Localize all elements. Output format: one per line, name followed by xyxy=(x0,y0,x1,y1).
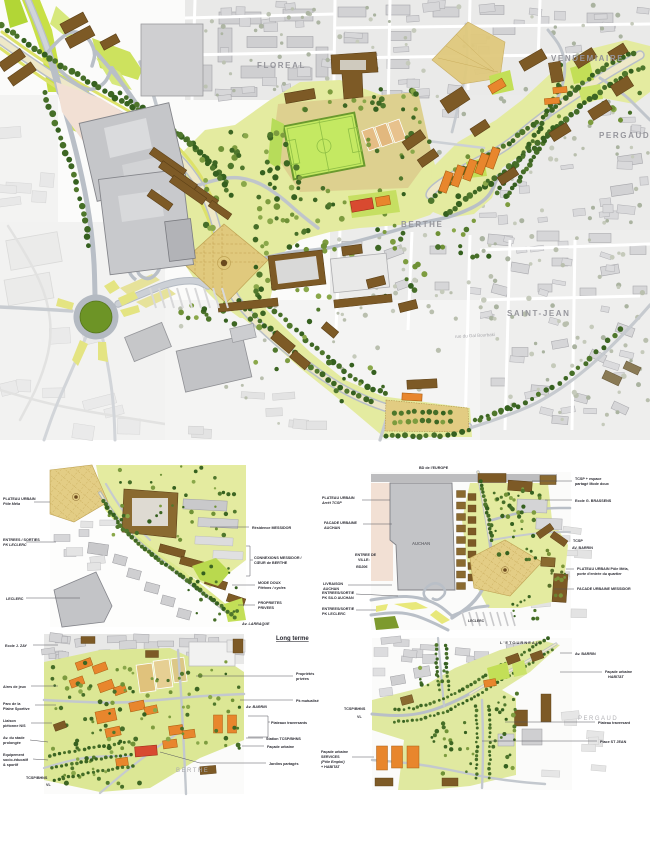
svg-text:PK LECLERC: PK LECLERC xyxy=(3,543,27,547)
svg-text:Pk mutualisé: Pk mutualisé xyxy=(296,699,319,703)
svg-text:TCSP + espace: TCSP + espace xyxy=(575,477,601,481)
svg-text:(Pôle Emploi): (Pôle Emploi) xyxy=(321,760,345,764)
svg-text:SERVICES: SERVICES xyxy=(321,755,340,759)
svg-text:AUCHAN: AUCHAN xyxy=(324,526,340,530)
svg-text:ENTREES/SORTIE: ENTREES/SORTIE xyxy=(322,607,355,611)
svg-text:Ecole G. BRASSENS: Ecole G. BRASSENS xyxy=(575,499,612,503)
svg-text:+ HABITAT: + HABITAT xyxy=(321,765,341,769)
svg-text:piétonne N/S: piétonne N/S xyxy=(3,724,26,728)
svg-text:TCSP/BHNS: TCSP/BHNS xyxy=(344,707,366,711)
svg-text:CONNEXIONS MESSIDOR /: CONNEXIONS MESSIDOR / xyxy=(254,556,302,560)
svg-text:Façade urbaine: Façade urbaine xyxy=(321,750,348,754)
svg-text:TCSP: TCSP xyxy=(573,539,583,543)
svg-text:VILLE:: VILLE: xyxy=(358,558,370,562)
svg-text:privées: privées xyxy=(296,677,309,681)
svg-text:Av. LARRAQUE: Av. LARRAQUE xyxy=(241,622,270,626)
svg-text:Station TCSP/BHNS: Station TCSP/BHNS xyxy=(266,737,301,741)
svg-text:CŒUR de BERTHE: CŒUR de BERTHE xyxy=(254,561,288,565)
svg-text:Jardins partagés: Jardins partagés xyxy=(269,762,299,766)
svg-text:VL: VL xyxy=(357,715,362,719)
svg-text:PLATEAU URBAIN: PLATEAU URBAIN xyxy=(322,496,355,500)
svg-text:Liaison: Liaison xyxy=(3,719,17,723)
svg-text:socio-éducatif: socio-éducatif xyxy=(3,758,29,762)
svg-text:& sportif: & sportif xyxy=(3,763,19,767)
svg-text:Equipement: Equipement xyxy=(3,753,25,757)
svg-text:FLOREAL: FLOREAL xyxy=(257,61,306,70)
svg-text:Av. BARRIN: Av. BARRIN xyxy=(245,705,267,709)
svg-text:PLATEAU URBAIN Pôle Méla,: PLATEAU URBAIN Pôle Méla, xyxy=(577,567,629,571)
svg-text:PRIVEES: PRIVEES xyxy=(258,606,275,610)
svg-text:prolongée: prolongée xyxy=(3,741,21,745)
svg-text:Aires de jeux: Aires de jeux xyxy=(3,685,27,689)
svg-text:Propriétés: Propriétés xyxy=(296,672,314,676)
svg-text:Arrêt TCSP: Arrêt TCSP xyxy=(321,501,342,505)
svg-text:PK SILO AUCHAN: PK SILO AUCHAN xyxy=(322,596,354,600)
svg-text:RD206: RD206 xyxy=(356,565,368,569)
svg-text:L'ETOURNEAU: L'ETOURNEAU xyxy=(500,640,540,645)
svg-text:PLATEAU URBAIN: PLATEAU URBAIN xyxy=(3,497,36,501)
svg-text:AUCHAN: AUCHAN xyxy=(412,541,430,546)
svg-text:PK LECLERC: PK LECLERC xyxy=(322,612,346,616)
svg-text:ENTREES/SORTIE: ENTREES/SORTIE xyxy=(322,591,355,595)
svg-text:VENDEMIAIRE: VENDEMIAIRE xyxy=(551,54,624,63)
svg-text:FACADE URBAINE: FACADE URBAINE xyxy=(324,521,358,525)
svg-text:ENTREE DE: ENTREE DE xyxy=(355,553,377,557)
svg-text:PERGAUD: PERGAUD xyxy=(599,131,650,140)
svg-text:Façade urbaine: Façade urbaine xyxy=(605,670,632,674)
svg-text:Place ST JEAN: Place ST JEAN xyxy=(600,740,627,744)
svg-text:FACADE URBAINE MESSIDOR: FACADE URBAINE MESSIDOR xyxy=(577,587,631,591)
svg-text:LECLERC: LECLERC xyxy=(468,619,485,623)
svg-text:Ecole J. ZAY: Ecole J. ZAY xyxy=(5,644,28,648)
svg-text:AV. BARRIN: AV. BARRIN xyxy=(572,546,593,550)
svg-text:Piétons / cycles: Piétons / cycles xyxy=(258,586,286,590)
svg-text:VL: VL xyxy=(46,783,51,787)
svg-text:Parc de la: Parc de la xyxy=(3,702,21,706)
svg-text:MODE DOUX: MODE DOUX xyxy=(258,581,281,585)
svg-text:Résidence MESSIDOR: Résidence MESSIDOR xyxy=(252,526,291,530)
svg-text:BD de l'EUROPE: BD de l'EUROPE xyxy=(419,466,449,470)
svg-text:SAINT-JEAN: SAINT-JEAN xyxy=(507,309,571,318)
svg-text:BERTHE: BERTHE xyxy=(176,768,209,774)
svg-text:partagé Mode doux: partagé Mode doux xyxy=(575,482,610,486)
svg-text:BERTHE: BERTHE xyxy=(401,220,444,229)
svg-text:PROPRIETES: PROPRIETES xyxy=(258,601,282,605)
svg-text:porte d'entrée du quartier: porte d'entrée du quartier xyxy=(577,572,622,576)
svg-text:Plateau traversant: Plateau traversant xyxy=(598,721,631,725)
svg-text:ENTREES / SORTIES: ENTREES / SORTIES xyxy=(3,538,40,542)
svg-text:Plaine Sportive: Plaine Sportive xyxy=(3,707,30,711)
svg-text:Av. du stade: Av. du stade xyxy=(3,736,25,740)
svg-text:HABITAT: HABITAT xyxy=(608,675,624,679)
svg-text:Plateaux traversants: Plateaux traversants xyxy=(271,721,307,725)
svg-text:LIVRAISON: LIVRAISON xyxy=(323,582,343,586)
svg-text:LECLERC: LECLERC xyxy=(6,597,24,601)
svg-text:Long terme: Long terme xyxy=(276,636,309,642)
svg-text:Pôle Méla: Pôle Méla xyxy=(3,502,20,506)
svg-text:Av. BARRIN: Av. BARRIN xyxy=(575,652,596,656)
svg-text:TCSP/BHNS: TCSP/BHNS xyxy=(26,776,48,780)
svg-text:Façade urbaine: Façade urbaine xyxy=(267,745,294,749)
